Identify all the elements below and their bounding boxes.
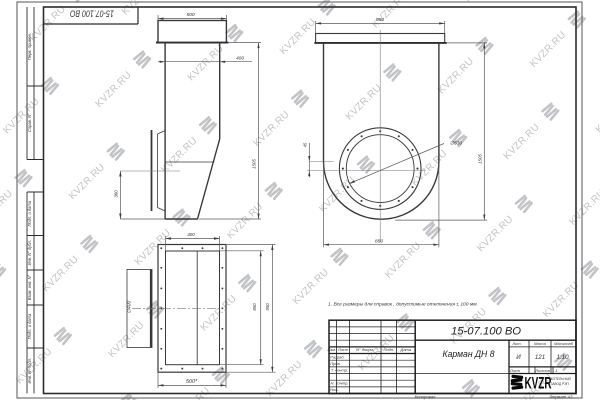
svg-text:Дата: Дата	[400, 347, 412, 352]
svg-text:950: 950	[265, 303, 270, 311]
svg-text:1:10: 1:10	[556, 354, 569, 361]
svg-text:45: 45	[302, 142, 307, 147]
svg-text:Масса: Масса	[534, 341, 547, 346]
svg-text:Взам. инв. N°: Взам. инв. N°	[27, 274, 32, 300]
svg-text:Масштаб: Масштаб	[554, 341, 573, 346]
svg-text:∅400: ∅400	[127, 300, 133, 313]
svg-text:KVZR.RU: KVZR.RU	[594, 95, 600, 135]
svg-text:Карман ДН 8: Карман ДН 8	[443, 349, 495, 359]
svg-text:KVZR.RU: KVZR.RU	[1, 96, 41, 136]
svg-text:KVZR.RU: KVZR.RU	[436, 56, 476, 96]
svg-text:1505: 1505	[477, 154, 482, 164]
svg-text:360: 360	[113, 190, 118, 198]
svg-text:850: 850	[376, 17, 384, 23]
svg-text:KVZR.RU: KVZR.RU	[344, 82, 384, 122]
svg-text:Утв.: Утв.	[329, 387, 338, 392]
svg-text:850: 850	[252, 303, 257, 311]
svg-text:KVZR.RU: KVZR.RU	[67, 162, 107, 202]
svg-text:400: 400	[236, 56, 244, 62]
svg-text:KVZR.RU: KVZR.RU	[41, 254, 81, 294]
svg-text:KVZR.RU: KVZR.RU	[0, 188, 15, 228]
svg-text:KVZR.RU: KVZR.RU	[567, 187, 600, 227]
svg-text:1: 1	[555, 368, 557, 373]
svg-text:KVZR.RU: KVZR.RU	[225, 201, 265, 241]
svg-text:KVZR.RU: KVZR.RU	[502, 122, 542, 162]
svg-text:Лист: Лист	[509, 368, 521, 373]
svg-text:Н. контр.: Н. контр.	[330, 381, 348, 386]
svg-text:1. Все размеры для справок ,: 1. Все размеры для справок , допустимые …	[328, 301, 478, 307]
svg-text:KVZR.RU: KVZR.RU	[528, 29, 568, 69]
svg-text:Подп. и дата: Подп. и дата	[27, 200, 32, 226]
svg-text:Подп.: Подп.	[383, 347, 394, 352]
svg-text:KVZR.RU: KVZR.RU	[291, 267, 331, 307]
svg-text:400: 400	[187, 232, 195, 237]
svg-text:Разраб.: Разраб.	[330, 354, 344, 359]
svg-text:1505: 1505	[252, 159, 257, 169]
svg-text:Копировал: Копировал	[415, 394, 436, 399]
svg-text:Лист: Лист	[337, 347, 349, 352]
svg-text:Справ. N°: Справ. N°	[27, 113, 32, 132]
svg-text:15-07.100 ВО: 15-07.100 ВО	[451, 325, 521, 337]
svg-text:КОТЕЛЬНЫЙ: КОТЕЛЬНЫЙ	[551, 377, 572, 381]
svg-text:500*: 500*	[186, 379, 198, 385]
svg-text:Инв. N° дубл.: Инв. N° дубл.	[27, 240, 32, 265]
svg-text:Перв. примен.: Перв. примен.	[27, 33, 32, 60]
svg-text:KVZR.RU: KVZR.RU	[94, 70, 134, 110]
svg-text:N° докум.: N° докум.	[356, 347, 374, 352]
svg-text:Т. контр.: Т. контр.	[331, 368, 348, 373]
svg-text:KVZR.RU: KVZR.RU	[133, 227, 173, 267]
svg-text:ЗАВОД РЭП: ЗАВОД РЭП	[550, 382, 569, 386]
svg-text:KVZR.RU: KVZR.RU	[383, 240, 423, 280]
svg-text:KVZR.RU: KVZR.RU	[278, 17, 318, 57]
svg-text:KVZR.RU: KVZR.RU	[199, 293, 239, 333]
svg-text:KVZR.RU: KVZR.RU	[252, 109, 292, 149]
svg-text:KVZR.RU: KVZR.RU	[370, 0, 410, 30]
svg-text:Подп. и дата: Подп. и дата	[27, 313, 32, 339]
svg-text:KVZR.RU: KVZR.RU	[120, 0, 160, 18]
svg-text:850: 850	[375, 239, 383, 245]
svg-text:И: И	[516, 354, 521, 361]
svg-text:Формат А3: Формат А3	[550, 394, 574, 399]
svg-text:Лит.: Лит.	[511, 341, 521, 346]
svg-text:∅530: ∅530	[450, 141, 463, 147]
svg-text:Пров.: Пров.	[330, 361, 341, 366]
svg-text:KVZR.RU: KVZR.RU	[409, 148, 449, 188]
svg-text:Инв. N° подл.: Инв. N° подл.	[27, 358, 32, 384]
svg-text:121: 121	[535, 354, 545, 361]
svg-text:Листов: Листов	[534, 368, 550, 373]
svg-text:Изм.: Изм.	[328, 347, 337, 352]
svg-text:500: 500	[187, 12, 195, 18]
svg-text:KVZR: KVZR	[525, 374, 552, 392]
svg-text:15-07.100 ВО: 15-07.100 ВО	[70, 7, 114, 18]
